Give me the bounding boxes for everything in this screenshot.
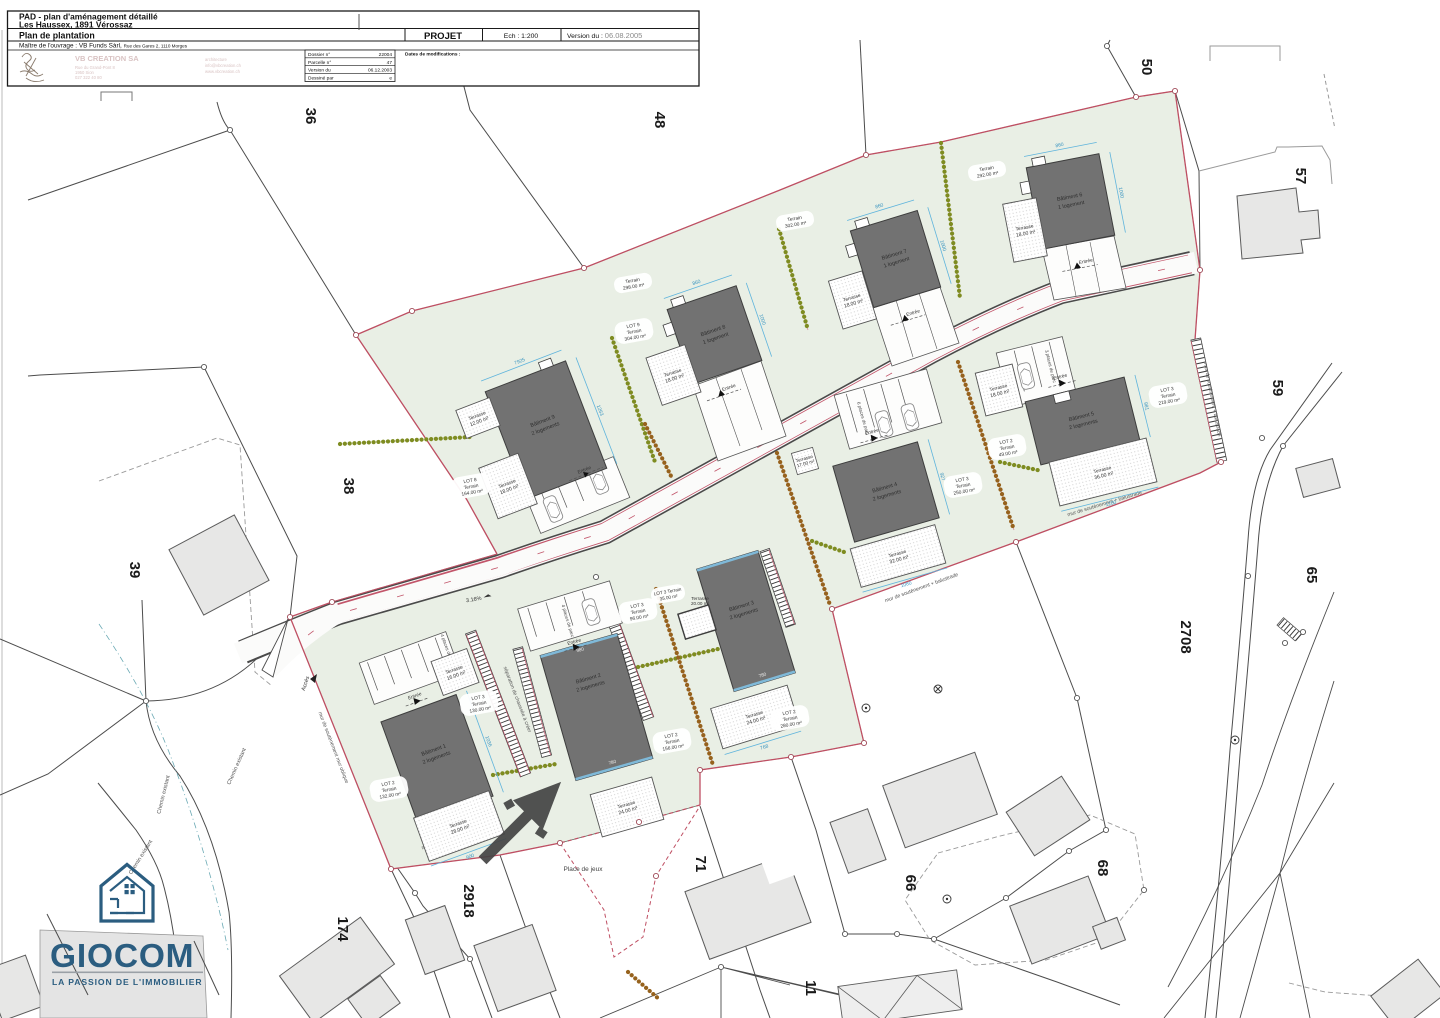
svg-text:2918: 2918 [460, 884, 477, 917]
svg-text:GIOCOM: GIOCOM [50, 938, 194, 975]
svg-text:Version du: Version du [308, 68, 331, 74]
svg-text:57: 57 [1292, 168, 1309, 185]
svg-text:Ech : 1:200: Ech : 1:200 [504, 33, 539, 40]
svg-text:39: 39 [126, 562, 143, 579]
svg-text:47: 47 [387, 60, 393, 66]
svg-text:36: 36 [302, 108, 319, 125]
svg-text:Parcelle n°: Parcelle n° [308, 60, 331, 66]
svg-text:Version du : 06.08.2005: Version du : 06.08.2005 [567, 31, 642, 40]
svg-text:06.12.2003: 06.12.2003 [368, 68, 392, 74]
svg-text:66: 66 [902, 875, 919, 892]
svg-text:Les Haussex, 1891 Vérossaz: Les Haussex, 1891 Vérossaz [19, 20, 133, 30]
svg-text:Maître de l'ouvrage : VB Fun: Maître de l'ouvrage : VB Funds Sàrl, Rue… [19, 43, 188, 50]
svg-text:68: 68 [1094, 860, 1111, 877]
svg-text:Dessiné par: Dessiné par [308, 75, 334, 81]
svg-text:architecture: architecture [205, 57, 228, 62]
svg-text:48: 48 [651, 112, 668, 129]
svg-text:174: 174 [334, 916, 351, 942]
svg-text:59: 59 [1269, 380, 1286, 397]
svg-text:Dates de modifications :: Dates de modifications : [405, 52, 461, 58]
svg-text:027 322 40 80: 027 322 40 80 [75, 75, 102, 80]
svg-text:VB CREATION SA: VB CREATION SA [75, 54, 139, 63]
svg-text:www.vbcreation.ch: www.vbcreation.ch [205, 69, 241, 74]
svg-text:2708: 2708 [1177, 620, 1194, 653]
svg-text:e: e [389, 76, 392, 81]
svg-text:Place de jeux: Place de jeux [563, 866, 603, 873]
svg-text:20.00 m²: 20.00 m² [691, 601, 710, 606]
svg-text:38: 38 [340, 478, 357, 495]
svg-text:info@vbcreation.ch: info@vbcreation.ch [205, 63, 242, 68]
svg-text:PROJET: PROJET [424, 31, 462, 42]
svg-text:LA PASSION DE L'IMMOBILIER: LA PASSION DE L'IMMOBILIER [52, 977, 203, 987]
svg-text:11: 11 [802, 980, 819, 996]
svg-text:50: 50 [1138, 59, 1155, 76]
svg-text:Plan de plantation: Plan de plantation [19, 31, 95, 41]
svg-text:71: 71 [692, 856, 709, 873]
svg-text:22004: 22004 [379, 52, 393, 58]
svg-text:Dossier n°: Dossier n° [308, 52, 330, 58]
svg-text:65: 65 [1303, 567, 1320, 584]
